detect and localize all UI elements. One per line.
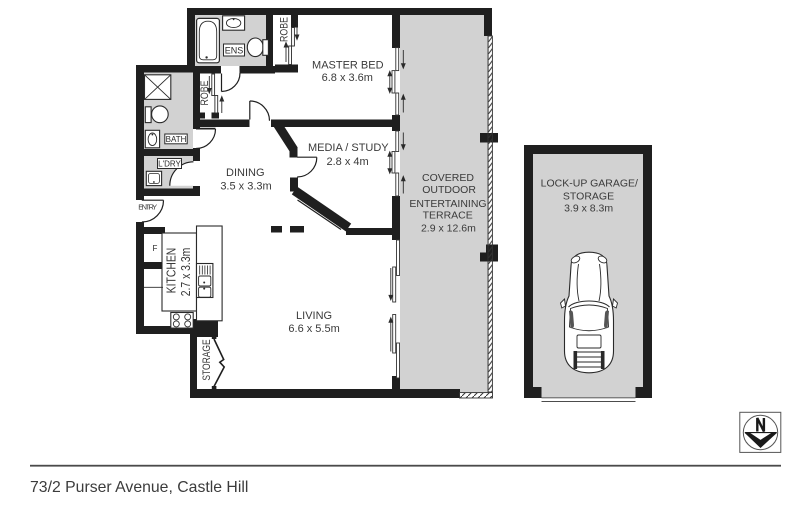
svg-text:73/2 Purser Avenue, Castle Hil: 73/2 Purser Avenue, Castle Hill xyxy=(30,479,248,496)
svg-text:6.8 x 3.6m: 6.8 x 3.6m xyxy=(322,72,373,84)
svg-text:LIVING: LIVING xyxy=(296,310,332,322)
svg-text:2.8 x 4m: 2.8 x 4m xyxy=(327,156,369,168)
svg-text:3.9 x 8.3m: 3.9 x 8.3m xyxy=(564,202,613,214)
svg-text:2.7 x 3.3m: 2.7 x 3.3m xyxy=(179,248,193,297)
svg-text:COVERED: COVERED xyxy=(422,172,474,184)
svg-text:ENTERTAINING: ENTERTAINING xyxy=(409,198,486,210)
svg-text:ENTRY: ENTRY xyxy=(138,202,157,211)
svg-text:ROBE: ROBE xyxy=(279,17,291,42)
svg-text:MEDIA / STUDY: MEDIA / STUDY xyxy=(308,142,389,154)
svg-text:OUTDOOR: OUTDOOR xyxy=(422,184,476,196)
svg-text:ENS: ENS xyxy=(225,45,244,55)
svg-text:LOCK-UP GARAGE/: LOCK-UP GARAGE/ xyxy=(541,177,638,189)
svg-text:KITCHEN: KITCHEN xyxy=(164,248,178,294)
svg-text:DINING: DINING xyxy=(226,167,265,179)
svg-text:F: F xyxy=(153,244,158,253)
svg-text:STORAGE: STORAGE xyxy=(201,339,213,381)
svg-text:3.5 x 3.3m: 3.5 x 3.3m xyxy=(220,181,271,193)
svg-text:STORAGE: STORAGE xyxy=(563,191,614,203)
svg-text:6.6 x 5.5m: 6.6 x 5.5m xyxy=(288,323,339,335)
svg-text:BATH: BATH xyxy=(166,135,187,144)
svg-text:L'DRY: L'DRY xyxy=(158,159,181,168)
svg-text:MASTER BED: MASTER BED xyxy=(312,59,384,71)
svg-text:2.9 x 12.6m: 2.9 x 12.6m xyxy=(421,223,476,235)
svg-text:ROBE: ROBE xyxy=(199,80,211,105)
svg-text:TERRACE: TERRACE xyxy=(423,209,473,221)
